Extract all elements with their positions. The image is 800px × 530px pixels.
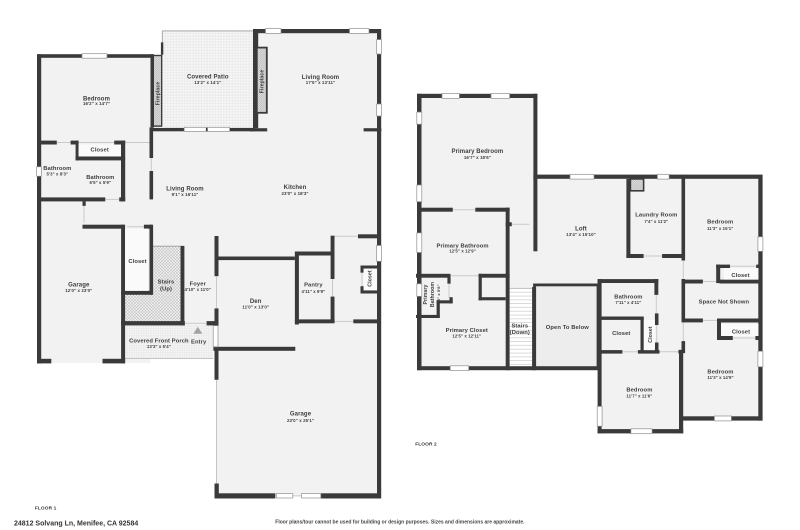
svg-text:11'3" x 15'1": 11'3" x 15'1"	[707, 226, 733, 231]
svg-text:Pantry: Pantry	[304, 283, 323, 289]
svg-text:Bedroom: Bedroom	[707, 220, 733, 226]
svg-text:12'5" x 12'11": 12'5" x 12'11"	[452, 334, 481, 339]
svg-text:23'0" x 18'3": 23'0" x 18'3"	[281, 191, 308, 196]
svg-text:Closet: Closet	[368, 270, 374, 287]
svg-text:4'11" x 9'9": 4'11" x 9'9"	[301, 289, 325, 294]
svg-text:Closet: Closet	[612, 331, 630, 337]
svg-text:13'2" x 14'1": 13'2" x 14'1"	[194, 80, 221, 85]
svg-text:Closet: Closet	[732, 330, 750, 336]
svg-text:Closet: Closet	[91, 147, 109, 153]
svg-text:Closet: Closet	[731, 273, 749, 279]
svg-text:Entry: Entry	[191, 340, 207, 346]
svg-text:9'1" x 16'11": 9'1" x 16'11"	[172, 192, 199, 197]
svg-text:Primary: Primary	[423, 284, 429, 304]
svg-text:Garage: Garage	[290, 412, 312, 418]
svg-text:FLOOR 2: FLOOR 2	[415, 442, 437, 448]
svg-text:Stairs: Stairs	[511, 324, 528, 330]
svg-text:13'4" x 15'10": 13'4" x 15'10"	[566, 232, 596, 237]
svg-text:24812 Solvang Ln, Menifee, CA: 24812 Solvang Ln, Menifee, CA 92584	[14, 521, 138, 528]
svg-text:Space Not Shown: Space Not Shown	[699, 300, 750, 306]
svg-text:Fireplace: Fireplace	[260, 70, 266, 94]
svg-text:6'5" x 5'9": 6'5" x 5'9"	[90, 180, 112, 185]
svg-text:Stairs: Stairs	[158, 279, 175, 285]
svg-text:4'10" x 11'0": 4'10" x 11'0"	[185, 287, 211, 292]
svg-text:Closet: Closet	[648, 326, 654, 343]
svg-text:4'3" x 5'8": 4'3" x 5'8"	[436, 284, 441, 304]
svg-text:Fireplace: Fireplace	[156, 82, 162, 106]
svg-text:5'3" x 8'3": 5'3" x 8'3"	[47, 172, 69, 177]
svg-text:Open To Below: Open To Below	[546, 325, 589, 331]
svg-text:11'0" x 13'0": 11'0" x 13'0"	[242, 304, 269, 309]
svg-text:11'7" x 11'6": 11'7" x 11'6"	[626, 393, 652, 398]
svg-text:23'0" x 25'1": 23'0" x 25'1"	[287, 418, 314, 423]
svg-text:11'3" x 14'9": 11'3" x 14'9"	[707, 375, 733, 380]
svg-text:Closet: Closet	[128, 259, 146, 265]
svg-text:FLOOR 1: FLOOR 1	[35, 506, 57, 512]
svg-text:7'11" x 4'11": 7'11" x 4'11"	[615, 300, 641, 305]
svg-text:(Down): (Down)	[510, 330, 530, 336]
svg-text:7'4" x 11'2": 7'4" x 11'2"	[644, 219, 668, 224]
svg-text:13'3" x 5'4": 13'3" x 5'4"	[147, 344, 171, 349]
svg-text:12'5" x 12'9": 12'5" x 12'9"	[449, 249, 476, 254]
svg-text:(Up): (Up)	[160, 286, 172, 292]
svg-text:17'5" x 13'11": 17'5" x 13'11"	[306, 80, 335, 85]
svg-text:12'0" x 23'0": 12'0" x 23'0"	[65, 288, 92, 293]
svg-text:Laundry Room: Laundry Room	[635, 213, 677, 219]
svg-text:Floor plans/tour cannot be use: Floor plans/tour cannot be used for buil…	[275, 520, 525, 526]
svg-text:16'7" x 18'6": 16'7" x 18'6"	[464, 155, 491, 160]
svg-text:16'2" x 14'7": 16'2" x 14'7"	[83, 101, 110, 106]
